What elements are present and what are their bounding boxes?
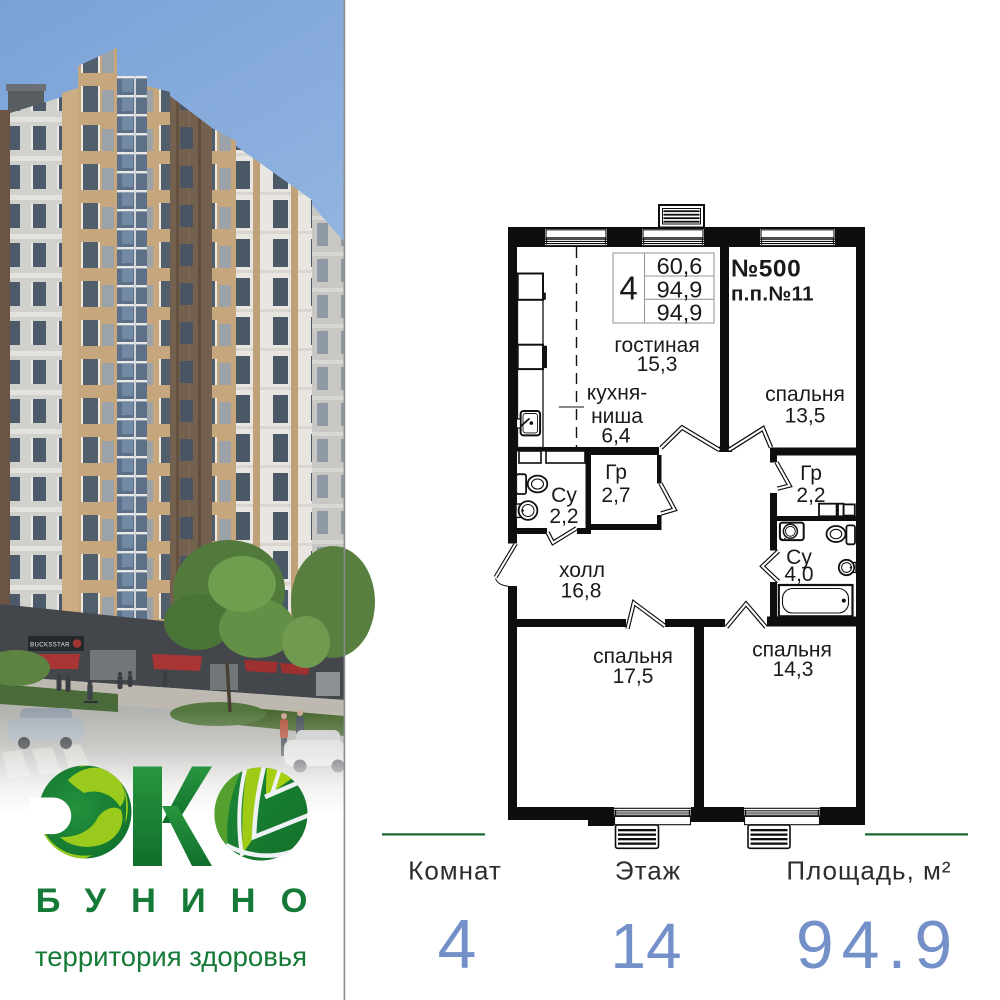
svg-text:п.п.№11: п.п.№11 (731, 283, 814, 306)
svg-text:17,5: 17,5 (613, 665, 654, 688)
svg-text:94,9: 94,9 (657, 300, 703, 326)
svg-text:94,9: 94,9 (657, 276, 703, 302)
svg-text:4: 4 (438, 905, 477, 983)
svg-text:2,2: 2,2 (796, 484, 825, 507)
svg-text:Этаж: Этаж (615, 856, 681, 886)
svg-text:спальня: спальня (765, 383, 845, 406)
svg-text:кухня-: кухня- (587, 382, 647, 405)
svg-text:13,5: 13,5 (785, 405, 826, 428)
svg-text:60,6: 60,6 (657, 253, 703, 279)
svg-text:Гр: Гр (605, 461, 627, 484)
svg-text:15,3: 15,3 (637, 353, 678, 376)
svg-text:территория здоровья: территория здоровья (35, 941, 307, 972)
svg-text:№500: №500 (731, 256, 801, 283)
svg-text:4,0: 4,0 (784, 563, 813, 586)
svg-text:4: 4 (619, 270, 637, 307)
svg-text:14: 14 (610, 910, 681, 982)
svg-text:Площадь, м²: Площадь, м² (786, 856, 951, 886)
svg-text:2,2: 2,2 (549, 505, 578, 528)
svg-text:Су: Су (551, 484, 577, 507)
svg-text:Комнат: Комнат (408, 856, 502, 886)
svg-text:2,7: 2,7 (601, 484, 630, 507)
svg-text:94.9: 94.9 (796, 907, 960, 983)
svg-text:БУНИНО: БУНИНО (36, 882, 333, 920)
svg-text:BUCKSSTAR: BUCKSSTAR (30, 643, 70, 649)
svg-text:14,3: 14,3 (773, 658, 814, 681)
svg-text:16,8: 16,8 (561, 580, 602, 603)
svg-text:6,4: 6,4 (601, 425, 631, 448)
svg-text:Гр: Гр (800, 462, 822, 485)
